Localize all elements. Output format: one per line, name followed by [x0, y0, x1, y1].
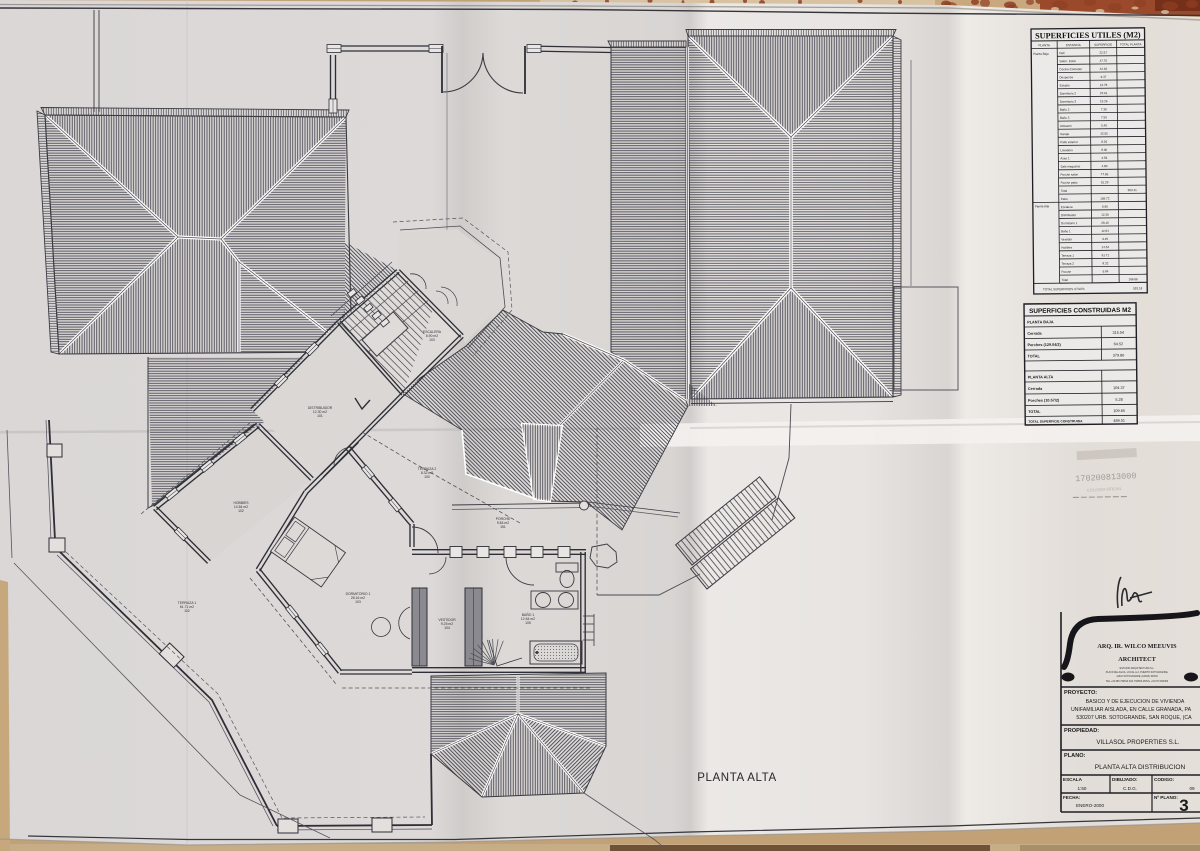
svg-text:PLANTA: PLANTA [1038, 43, 1049, 47]
svg-text:Terraza 2: Terraza 2 [1061, 262, 1074, 266]
svg-text:11310 SOTOGRANDE (CADIZ) SPAIN: 11310 SOTOGRANDE (CADIZ) SPAIN [1116, 675, 1157, 678]
svg-text:Estudio: Estudio [1060, 83, 1070, 87]
svg-text:Hobbies: Hobbies [1061, 245, 1073, 249]
svg-text:VILLASOL PROPERTIES S.L.: VILLASOL PROPERTIES S.L. [1096, 739, 1180, 746]
svg-text:8.00: 8.00 [1101, 148, 1107, 152]
svg-text:PLANTA ALTA DISTRIBUCION: PLANTA ALTA DISTRIBUCION [1095, 764, 1186, 771]
svg-text:SUPERFICIE: SUPERFICIE [1094, 43, 1112, 47]
svg-text:102: 102 [184, 609, 190, 613]
svg-text:489.51: 489.51 [1113, 419, 1125, 423]
svg-text:FECHA:: FECHA: [1063, 795, 1081, 800]
svg-text:Almacen: Almacen [1060, 124, 1072, 128]
svg-text:103: 103 [429, 338, 435, 342]
svg-text:ESCALA: ESCALA [1063, 777, 1083, 782]
svg-text:100: 100 [424, 475, 430, 479]
svg-text:47.75: 47.75 [1100, 59, 1108, 63]
svg-text:ESTUDIO ARQUITECTURA S.L.: ESTUDIO ARQUITECTURA S.L. [1120, 667, 1155, 670]
svg-text:TEL +34 956 790510 FAX 790566: TEL +34 956 790510 FAX 790566 MOVIL +34 … [1106, 680, 1169, 683]
svg-text:104.37: 104.37 [1113, 386, 1125, 390]
svg-text:5.28: 5.28 [1115, 398, 1122, 402]
svg-text:Patio: Patio [1061, 197, 1068, 201]
svg-text:Total: Total [1061, 189, 1068, 193]
svg-text:Despensa: Despensa [1059, 75, 1073, 79]
svg-text:Nº PLANO:: Nº PLANO: [1154, 795, 1178, 800]
svg-text:PLANTA ALTA: PLANTA ALTA [1028, 375, 1054, 379]
svg-text:SUPERFICIES UTILES (M2): SUPERFICIES UTILES (M2) [1035, 30, 1141, 40]
svg-text:105: 105 [525, 621, 531, 625]
svg-text:22.57: 22.57 [1099, 51, 1107, 55]
svg-text:Baño 2: Baño 2 [1060, 108, 1070, 112]
svg-text:3.56: 3.56 [1101, 156, 1107, 160]
svg-text:363.41: 363.41 [1128, 188, 1138, 192]
svg-text:151: 151 [500, 525, 506, 529]
svg-text:TOTAL PLANTA: TOTAL PLANTA [1120, 42, 1142, 46]
svg-text:Cocina-Comedor: Cocina-Comedor [1059, 67, 1082, 71]
svg-text:4.80: 4.80 [1101, 164, 1107, 168]
svg-text:PLAYA DEL AGUA, LOCAL A-2, PUE: PLAYA DEL AGUA, LOCAL A-2, PUERTO SOTOGR… [1106, 671, 1169, 674]
svg-text:CODIGO:: CODIGO: [1154, 777, 1175, 782]
svg-text:530207 URB. SOTOGRANDE, SAN RO: 530207 URB. SOTOGRANDE, SAN ROQUE, (CA [1076, 715, 1192, 721]
svg-text:Cerrada: Cerrada [1028, 387, 1043, 391]
svg-text:61.71: 61.71 [1102, 253, 1110, 257]
svg-text:28.16: 28.16 [1101, 221, 1109, 225]
svg-text:24.61: 24.61 [1100, 91, 1108, 95]
svg-text:5.40: 5.40 [1101, 124, 1107, 128]
svg-text:379.86: 379.86 [1113, 353, 1125, 357]
svg-text:103: 103 [355, 600, 361, 604]
svg-text:12.64: 12.64 [1101, 229, 1109, 233]
svg-text:ARCHITECT: ARCHITECT [1118, 656, 1156, 663]
svg-text:DIBUJADO:: DIBUJADO: [1112, 777, 1138, 782]
svg-text:PROYECTO:: PROYECTO: [1064, 690, 1097, 696]
svg-text:ARQ. IR. WILCO MEEUVIS: ARQ. IR. WILCO MEEUVIS [1097, 643, 1177, 650]
svg-text:42.92: 42.92 [1100, 67, 1108, 71]
svg-text:TOTAL: TOTAL [1028, 354, 1041, 358]
svg-text:PLANO:: PLANO: [1064, 753, 1086, 759]
svg-text:TOTAL: TOTAL [1028, 410, 1041, 414]
svg-text:ENERO-2000: ENERO-2000 [1076, 803, 1105, 808]
svg-text:7.55: 7.55 [1101, 115, 1107, 119]
svg-text:Terraza 1: Terraza 1 [1061, 254, 1074, 258]
svg-text:Baño 3: Baño 3 [1060, 116, 1070, 120]
svg-text:Sala maquinas: Sala maquinas [1060, 164, 1080, 168]
svg-text:Escalera: Escalera [1061, 205, 1073, 209]
svg-text:109.73: 109.73 [1100, 196, 1110, 200]
svg-text:PLANTA BAJA: PLANTA BAJA [1027, 320, 1054, 324]
svg-text:Lavadero: Lavadero [1060, 148, 1073, 152]
svg-text:1:50: 1:50 [1078, 786, 1087, 791]
svg-text:51.29: 51.29 [1101, 180, 1109, 184]
svg-text:TOTAL SUPERFICIES UTILES: TOTAL SUPERFICIES UTILES [1043, 287, 1085, 291]
svg-text:Planta Alta: Planta Alta [1035, 204, 1050, 208]
svg-text:42.55: 42.55 [1100, 132, 1108, 136]
svg-text:Porche salon: Porche salon [1061, 173, 1079, 177]
svg-text:101: 101 [317, 414, 323, 418]
svg-text:UNIFAMILIAR AISLADA, EN CALLE: UNIFAMILIAR AISLADA, EN CALLE GRANADA, P… [1071, 707, 1192, 713]
svg-text:Baño 1: Baño 1 [1061, 229, 1071, 233]
svg-text:6.90: 6.90 [1102, 205, 1108, 209]
svg-text:Salon- Estar: Salon- Estar [1059, 59, 1076, 63]
svg-text:8.32: 8.32 [1103, 261, 1109, 265]
svg-text:12.30: 12.30 [1101, 213, 1109, 217]
svg-text:Porche: Porche [1062, 270, 1072, 274]
svg-text:9.84: 9.84 [1103, 269, 1109, 273]
svg-text:109.65: 109.65 [1113, 409, 1125, 413]
svg-text:C.D.G.: C.D.G. [1123, 786, 1137, 791]
svg-text:Cerrada: Cerrada [1027, 332, 1042, 336]
svg-text:166.66: 166.66 [1129, 277, 1139, 281]
svg-text:SUPERFICIES CONSTRUIDAS M2: SUPERFICIES CONSTRUIDAS M2 [1029, 307, 1131, 315]
svg-text:9.25: 9.25 [1102, 237, 1108, 241]
svg-text:Porches (10.57/2): Porches (10.57/2) [1028, 398, 1060, 402]
svg-text:77.65: 77.65 [1101, 172, 1109, 176]
svg-text:Vestidor: Vestidor [1061, 237, 1072, 241]
svg-text:Distribuidor: Distribuidor [1061, 213, 1076, 217]
svg-text:PROPIEDAD:: PROPIEDAD: [1064, 728, 1099, 734]
svg-text:8.26: 8.26 [1101, 140, 1107, 144]
svg-text:Hall: Hall [1059, 51, 1065, 55]
svg-text:Porche patio: Porche patio [1061, 181, 1078, 185]
svg-text:19.26: 19.26 [1100, 99, 1108, 103]
svg-text:102: 102 [238, 509, 244, 513]
svg-text:TOTAL SUPERFICIE CONSTRUIDA: TOTAL SUPERFICIE CONSTRUIDA [1028, 419, 1083, 424]
svg-text:BASICO Y DE EJECUCION DE VIVIE: BASICO Y DE EJECUCION DE VIVIENDA [1086, 699, 1185, 705]
svg-text:6.37: 6.37 [1101, 75, 1107, 79]
svg-text:64.52: 64.52 [1114, 342, 1124, 346]
svg-text:315.54: 315.54 [1112, 331, 1124, 335]
svg-text:7.36: 7.36 [1101, 107, 1107, 111]
svg-text:Aseo 1: Aseo 1 [1060, 156, 1070, 160]
svg-text:Porches (129.04/2): Porches (129.04/2) [1027, 343, 1061, 347]
svg-text:Planta Baja: Planta Baja [1033, 52, 1049, 56]
svg-text:Patio exterior: Patio exterior [1060, 140, 1078, 144]
svg-text:09: 09 [1189, 786, 1195, 791]
svg-text:Dormitorio 2: Dormitorio 2 [1060, 91, 1077, 95]
svg-text:3: 3 [1179, 796, 1188, 815]
svg-text:Dormitorio 3: Dormitorio 3 [1060, 100, 1077, 104]
svg-text:ESTANCIA: ESTANCIA [1066, 43, 1081, 47]
svg-text:Garaje: Garaje [1060, 132, 1069, 136]
svg-text:Total: Total [1062, 278, 1069, 282]
svg-text:14.54: 14.54 [1102, 245, 1110, 249]
svg-text:12.78: 12.78 [1100, 83, 1108, 87]
svg-text:104: 104 [444, 626, 450, 630]
svg-text:Dormitorio 1: Dormitorio 1 [1061, 221, 1078, 225]
svg-text:553.18: 553.18 [1133, 286, 1143, 290]
svg-text:PLANTA ALTA: PLANTA ALTA [697, 772, 776, 784]
